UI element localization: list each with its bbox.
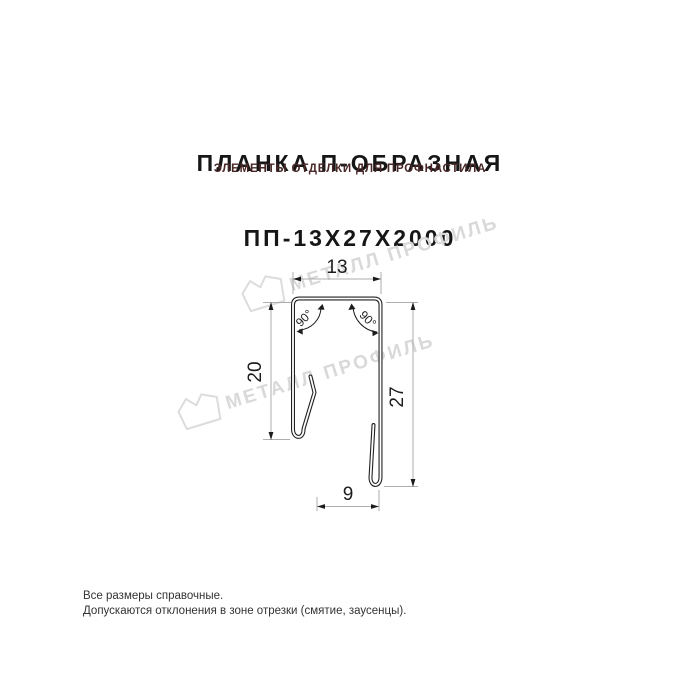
footer-note-2: Допускаются отклонения в зоне отрезки (с… (83, 604, 406, 619)
brand-logo-icon (176, 390, 224, 430)
footer-notes: Все размеры справочные. Допускаются откл… (83, 589, 406, 619)
brand-logo-icon (240, 272, 288, 312)
dim-label-top-width: 13 (326, 257, 347, 278)
dim-label-left-height: 20 (245, 361, 266, 382)
footer-note-1: Все размеры справочные. (83, 589, 406, 604)
technical-drawing: МЕТАЛЛ ПРОФИЛЬ МЕТАЛЛ ПРОФИЛЬ (160, 228, 520, 528)
angle-label-left: 90° (293, 307, 316, 330)
page-root: { "title": { "line1": "ПЛАНКА П-ОБРАЗНАЯ… (0, 0, 700, 700)
dim-label-right-height: 27 (387, 386, 408, 407)
angle-label-right: 90° (356, 308, 379, 331)
product-subtitle: ЭЛЕМЕНТЫ ОТДЕЛКИ ДЛЯ ПРОФНАСТИЛА (0, 163, 700, 175)
dim-label-bottom-width: 9 (343, 484, 354, 505)
